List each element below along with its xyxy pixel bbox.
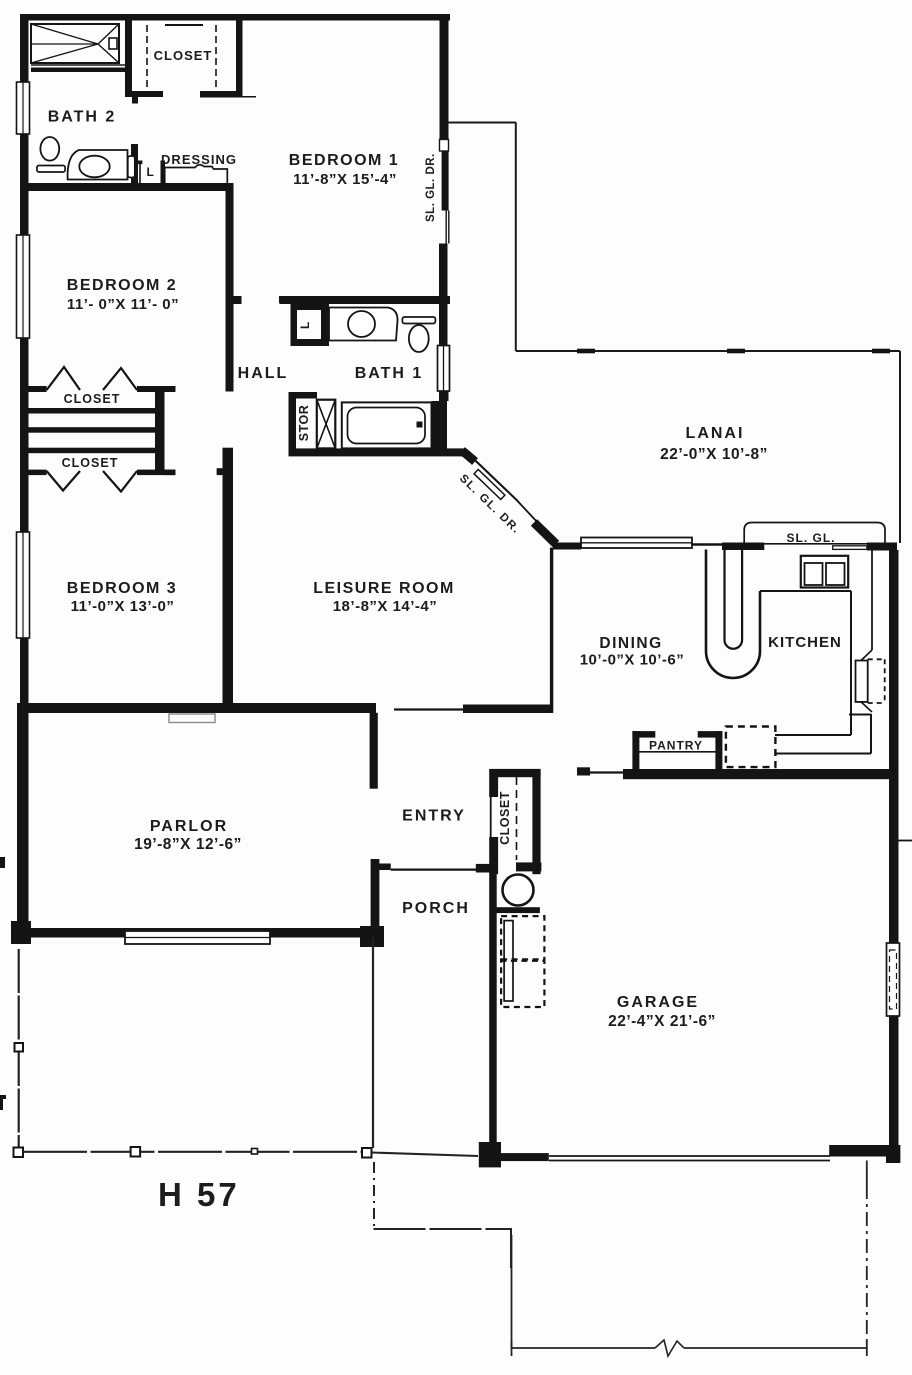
svg-text:BEDROOM 1: BEDROOM 1 bbox=[289, 152, 399, 169]
svg-text:11’-8”X 15’-4”: 11’-8”X 15’-4” bbox=[293, 171, 397, 188]
svg-text:11’-0”X 13’-0”: 11’-0”X 13’-0” bbox=[71, 598, 175, 615]
svg-text:H 57: H 57 bbox=[158, 1176, 240, 1213]
svg-text:GARAGE: GARAGE bbox=[617, 994, 699, 1011]
svg-text:L: L bbox=[147, 165, 154, 179]
svg-text:CLOSET: CLOSET bbox=[154, 48, 213, 63]
svg-text:ENTRY: ENTRY bbox=[402, 808, 466, 825]
svg-text:11’- 0”X 11’- 0”: 11’- 0”X 11’- 0” bbox=[67, 296, 179, 313]
svg-text:LEISURE ROOM: LEISURE ROOM bbox=[313, 580, 455, 597]
svg-text:CLOSET: CLOSET bbox=[64, 392, 121, 406]
svg-text:HALL: HALL bbox=[238, 365, 289, 382]
svg-text:PARLOR: PARLOR bbox=[150, 818, 228, 835]
svg-text:10’-0”X 10’-6”: 10’-0”X 10’-6” bbox=[580, 652, 685, 669]
svg-text:DINING: DINING bbox=[599, 635, 662, 652]
svg-text:CLOSET: CLOSET bbox=[62, 456, 119, 470]
svg-text:18’-8”X 14’-4”: 18’-8”X 14’-4” bbox=[333, 598, 438, 615]
svg-text:BEDROOM 3: BEDROOM 3 bbox=[67, 580, 177, 597]
svg-text:22’-4”X 21’-6”: 22’-4”X 21’-6” bbox=[608, 1013, 716, 1030]
svg-text:PORCH: PORCH bbox=[402, 900, 470, 917]
svg-text:PANTRY: PANTRY bbox=[649, 739, 703, 753]
svg-text:BATH 2: BATH 2 bbox=[48, 109, 117, 126]
svg-text:SL. GL. DR.: SL. GL. DR. bbox=[425, 153, 437, 222]
svg-text:KITCHEN: KITCHEN bbox=[768, 634, 842, 651]
svg-text:STOR: STOR bbox=[297, 405, 311, 442]
svg-text:19’-8”X 12’-6”: 19’-8”X 12’-6” bbox=[134, 836, 242, 853]
svg-text:22’-0”X 10’-8”: 22’-0”X 10’-8” bbox=[660, 446, 768, 463]
svg-text:BATH 1: BATH 1 bbox=[355, 365, 424, 382]
svg-text:SL. GL.: SL. GL. bbox=[787, 531, 836, 545]
svg-text:LANAI: LANAI bbox=[686, 425, 745, 442]
svg-text:CLOSET: CLOSET bbox=[498, 791, 512, 845]
svg-text:BEDROOM 2: BEDROOM 2 bbox=[67, 277, 177, 294]
svg-text:L: L bbox=[298, 322, 312, 329]
